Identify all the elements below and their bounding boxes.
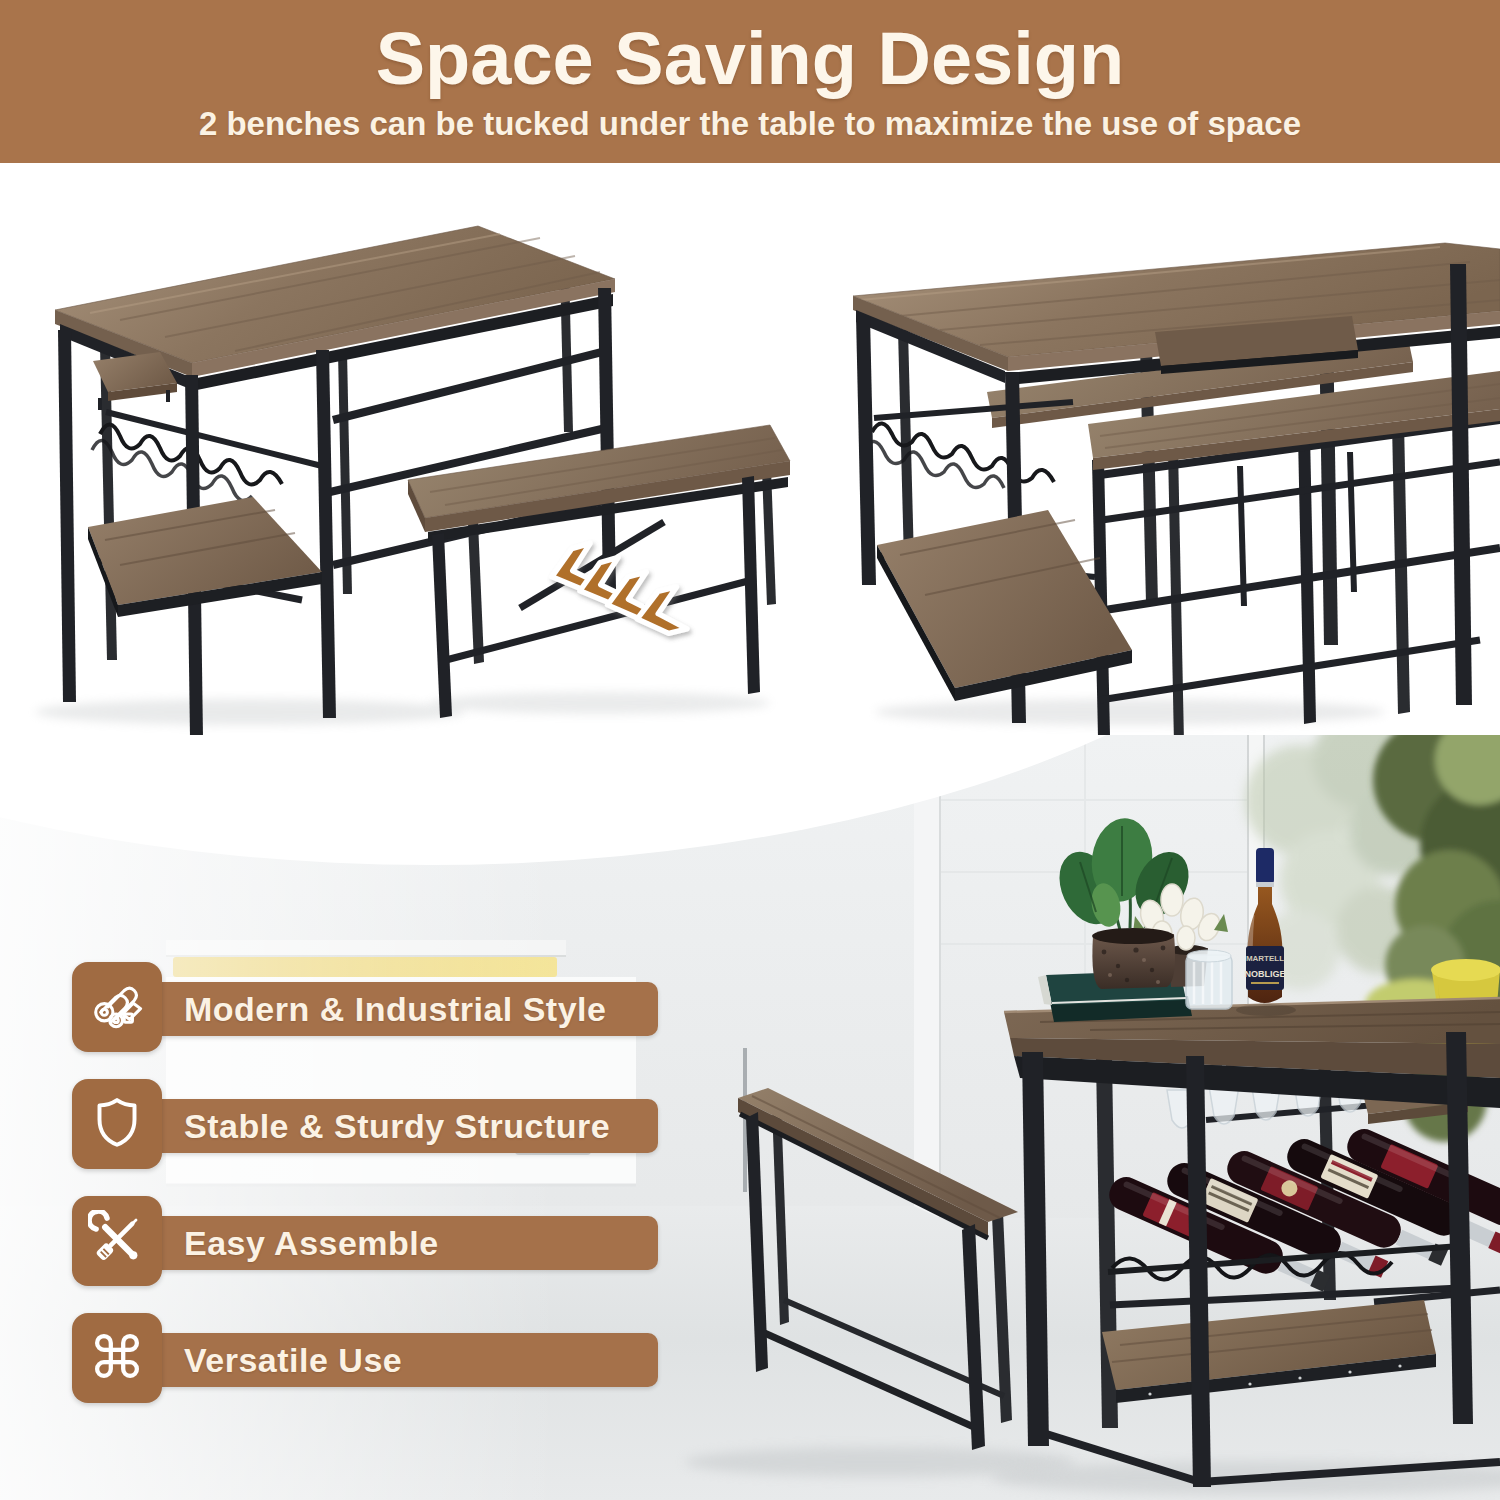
- product-photo-bench-out: [0, 195, 810, 760]
- drinking-glass: [1186, 950, 1232, 1009]
- product-photo-benches-tucked: [830, 230, 1500, 775]
- bottom-shelf: [88, 497, 322, 617]
- feature-label: Stable & Sturdy Structure: [138, 1107, 610, 1146]
- table-illustration: [853, 243, 1500, 744]
- page-title: Space Saving Design: [376, 20, 1125, 98]
- bottle-label-text: NOBLIGE: [1244, 969, 1285, 979]
- wall-corner: [914, 735, 940, 1217]
- bottle-cap: [1256, 848, 1274, 884]
- wine-rack-wire: [864, 423, 1054, 488]
- page-subtitle: 2 benches can be tucked under the table …: [199, 105, 1301, 143]
- feature-label: Easy Assemble: [138, 1224, 439, 1263]
- header-band: Space Saving Design 2 benches can be tuc…: [0, 0, 1500, 163]
- tools-icon: [88, 1210, 146, 1272]
- feature-label: Versatile Use: [138, 1341, 402, 1380]
- left-photo-shadows: [35, 692, 770, 725]
- command-icon: ⌘: [88, 1329, 146, 1387]
- lumber-icon: [88, 976, 146, 1038]
- shield-icon: [89, 1094, 145, 1154]
- feature-label: Modern & Industrial Style: [138, 990, 606, 1029]
- product-infographic: Space Saving Design 2 benches can be tuc…: [0, 0, 1500, 1500]
- bottle-brand-text: MARTELL: [1246, 954, 1284, 963]
